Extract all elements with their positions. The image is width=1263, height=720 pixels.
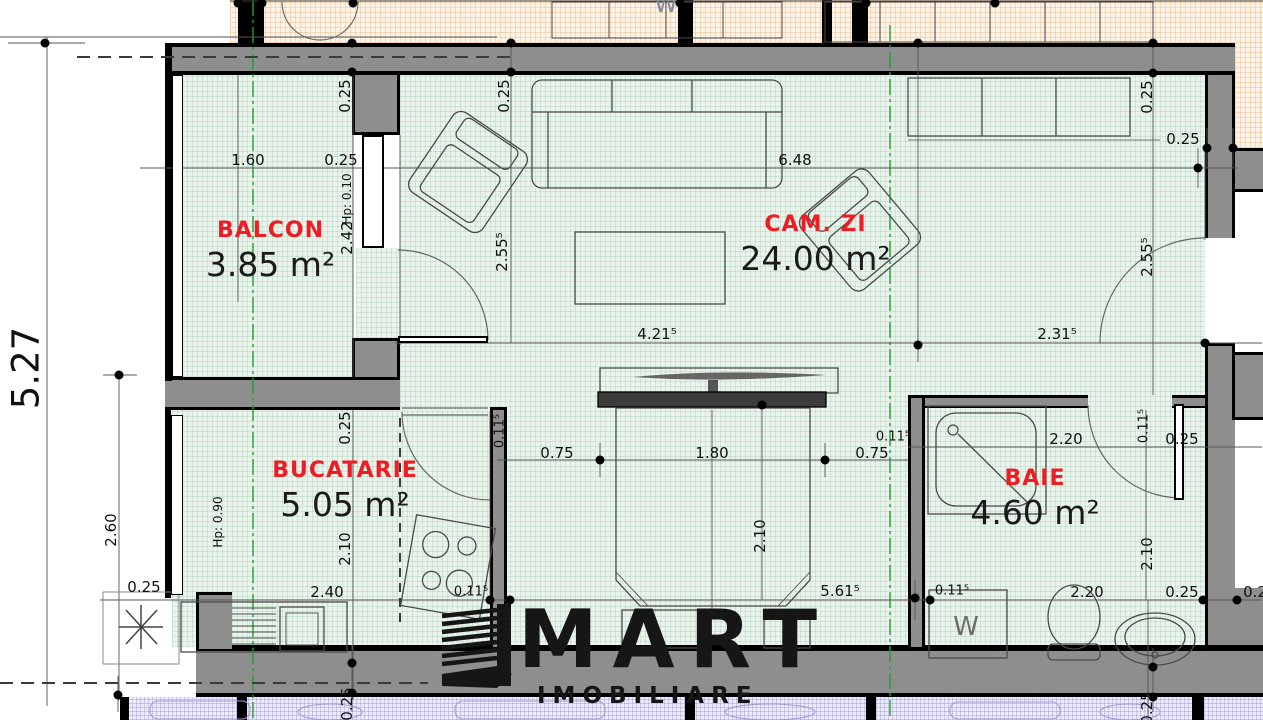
dimension-label: 2.31⁵ (1037, 325, 1076, 343)
dimension-label: 2.10 (336, 532, 354, 565)
dimension-label: 0.25 (336, 411, 354, 444)
wall-node-marker (1233, 596, 1242, 605)
sofa (532, 80, 782, 188)
bath-door-leaf (1174, 404, 1184, 500)
wall-node-marker (821, 456, 830, 465)
wall-node-marker (41, 39, 50, 48)
room-area: 3.85 m² (198, 245, 343, 284)
wall-node-marker (348, 39, 357, 48)
wall-node-marker (758, 401, 767, 410)
dimension-label: 0.25 (1165, 430, 1198, 448)
dimension-label: 1.60 (231, 151, 264, 169)
neighbor-door-arc (282, 2, 358, 40)
dimension-label: 2.55⁵ (1138, 237, 1156, 276)
coffee-table (575, 232, 725, 304)
dimension-label: Hp: 0.10 (340, 173, 354, 224)
dimension-label: 0.25 (1166, 130, 1199, 148)
dimension-label: 0.11⁵ (493, 414, 508, 448)
dimension-label: 2.10 (1138, 537, 1156, 570)
dimension-label: 2.10 (751, 519, 769, 552)
wall-node-marker (348, 659, 357, 668)
room-label-balcon: BALCON 3.85 m² (198, 218, 343, 284)
balcony-door-arc (398, 250, 488, 340)
balcony-glazing (172, 75, 183, 377)
wall-node-marker (926, 596, 935, 605)
watermark-brand: MART (518, 600, 832, 680)
room-area: 4.60 m² (960, 493, 1110, 532)
dimension-label: 0.25 (324, 151, 357, 169)
dimension-label: 2.20 (1049, 430, 1082, 448)
wall-node-marker (1199, 596, 1208, 605)
room-area: 24.00 m² (733, 239, 898, 278)
armchair (405, 108, 532, 237)
wall-node-marker (1149, 663, 1158, 672)
room-name: CAM. ZI (733, 212, 898, 237)
room-area: 5.05 m² (260, 485, 430, 524)
balcony-door-leaf (398, 336, 488, 343)
room-name: BALCON (198, 218, 343, 243)
washer-label: W (953, 612, 979, 642)
dimension-label: 0.25 (336, 79, 354, 112)
dimension-label: 4.21⁵ (637, 325, 676, 343)
room-name: BAIE (960, 466, 1110, 491)
kitchen-counter (181, 602, 347, 652)
wall-node-marker (507, 68, 516, 77)
dimension-label: 2.20 (1070, 583, 1103, 601)
bath-sink (1115, 613, 1195, 665)
wall-node-marker (348, 689, 357, 698)
wall-node-marker (1149, 69, 1158, 78)
neighbor-washer-label: W (654, 0, 678, 18)
wall-node-marker (115, 371, 124, 380)
dimension-label: 0.2 (1243, 583, 1263, 601)
room-label-baie: BAIE 4.60 m² (960, 466, 1110, 532)
dimension-label: 1.80 (695, 444, 728, 462)
dimension-label: 0.11⁵ (935, 584, 969, 599)
compass-star-icon (103, 592, 179, 664)
dimension-label: 0.11⁵ (454, 585, 488, 600)
wall-node-marker (1203, 144, 1212, 153)
dimension-label: Hp: 0.90 (211, 496, 225, 547)
neighbor-closets (552, 2, 1153, 42)
dimension-label: 2.40 (310, 583, 343, 601)
brand-logo-icon (442, 604, 512, 688)
dimension-label: 5.27 (5, 327, 48, 409)
dimension-label: 6.48 (778, 151, 811, 169)
dimension-label: 0.11⁵ (876, 430, 910, 445)
dimension-label: 0.75 (540, 444, 573, 462)
wall-node-marker (914, 39, 923, 48)
room-name: BUCATARIE (260, 458, 430, 483)
stove (401, 515, 496, 619)
wall-node-marker (506, 596, 515, 605)
wall-node-marker (114, 691, 123, 700)
wall-node-marker (596, 456, 605, 465)
wall-node-marker (1201, 339, 1210, 348)
balcony-living-window (362, 135, 384, 248)
tv-unit (598, 368, 838, 407)
wall-node-marker (911, 594, 920, 603)
room-label-cam-zi: CAM. ZI 24.00 m² (733, 212, 898, 278)
wall-node-marker (1194, 164, 1203, 173)
dimension-label: 0.25 (1165, 583, 1198, 601)
wardrobe (908, 78, 1160, 140)
wall-node-marker (1229, 144, 1238, 153)
wall-node-marker (914, 341, 923, 350)
dimension-label: 2.60 (102, 513, 120, 546)
floor-plan: BALCON 3.85 m² CAM. ZI 24.00 m² BUCATARI… (0, 0, 1263, 720)
dimension-label: 0.25 (1138, 80, 1156, 113)
wall-node-marker (1149, 693, 1158, 702)
watermark-subtitle: IMOBILIARE (537, 683, 759, 709)
dimension-label: 0.25 (127, 578, 160, 596)
dimension-label: 0.25 (495, 79, 513, 112)
dimension-label: 0.11⁵ (1137, 409, 1152, 443)
wall-node-marker (1149, 39, 1158, 48)
dimension-label: 0.75 (855, 444, 888, 462)
dimension-label: 2.55⁵ (493, 232, 511, 271)
wall-node-marker (486, 596, 495, 605)
wall-node-marker (507, 39, 516, 48)
kitchen-window (171, 415, 183, 595)
room-label-bucatarie: BUCATARIE 5.05 m² (260, 458, 430, 524)
wall-node-marker (348, 68, 357, 77)
